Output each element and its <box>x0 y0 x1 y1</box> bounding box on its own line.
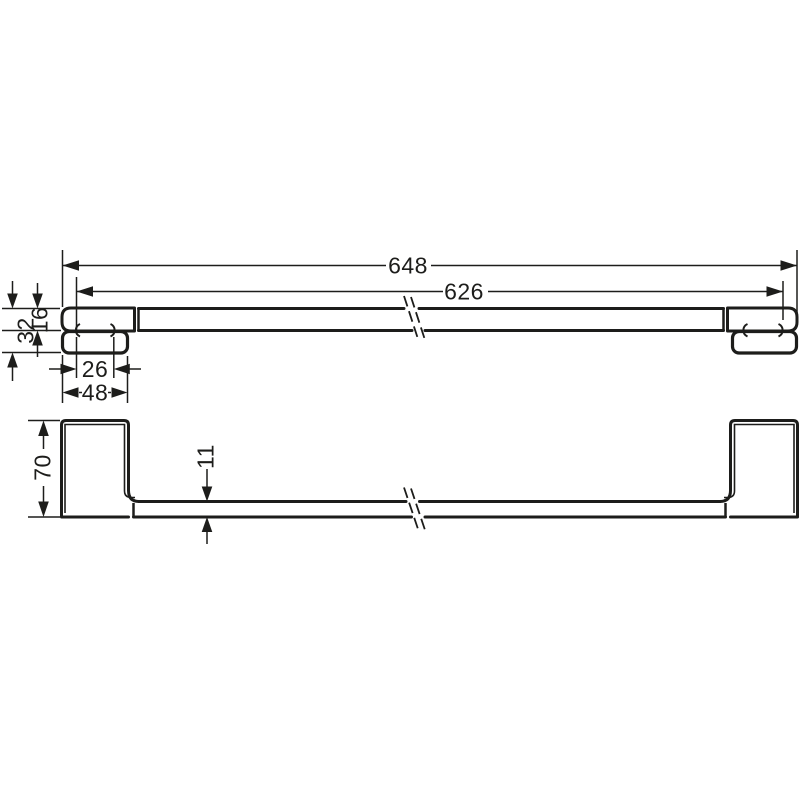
arrowhead-down-icon <box>38 502 49 518</box>
dim-overall-length-label: 648 <box>388 253 428 279</box>
bracket-outline <box>720 421 798 518</box>
rail-outline <box>134 488 726 534</box>
dimension-mounting-centers: 626 <box>77 277 784 330</box>
bracket-inner-edge <box>65 425 135 514</box>
arrowhead-left-icon <box>63 260 80 270</box>
arrowhead-down-icon <box>32 294 43 309</box>
end-cap-outline <box>728 308 798 331</box>
right-bracket <box>720 421 798 518</box>
dim-bracket-height-label: 70 <box>30 454 56 481</box>
dim-plate-width-label: 48 <box>82 380 109 406</box>
dimension-rail-thickness: 11 <box>193 444 219 544</box>
dim-rail-depth-label: 16 <box>27 307 53 334</box>
arrowhead-up-icon <box>7 353 18 368</box>
bracket-inner-edge <box>724 425 794 514</box>
arrowhead-up-icon <box>38 421 49 437</box>
front-view: 70 11 <box>28 421 798 545</box>
arrowhead-right-icon <box>112 387 128 397</box>
arrowhead-up-icon <box>202 517 213 532</box>
right-end-cap <box>728 308 798 353</box>
drawing-canvas: 648 626 <box>0 0 800 800</box>
dim-mounting-centers-label: 626 <box>444 279 484 305</box>
break-mark <box>411 297 425 340</box>
arrowhead-right-icon <box>781 260 798 270</box>
top-view: 648 626 <box>2 250 797 406</box>
dimension-bracket-height: 70 <box>28 421 60 518</box>
rail-outline <box>139 296 724 340</box>
arrowhead-left-icon <box>63 387 79 397</box>
wall-plate-left <box>63 332 128 354</box>
arrowhead-right-icon <box>767 286 784 296</box>
dim-plate-hole-spacing-label: 26 <box>82 356 109 382</box>
wall-plate-right <box>733 332 797 354</box>
left-end-cap <box>62 308 135 353</box>
end-cap-outline <box>62 308 135 331</box>
dimension-overall-length: 648 <box>63 250 798 313</box>
break-mark <box>404 488 419 533</box>
arrowhead-down-icon <box>7 294 18 309</box>
break-mark <box>404 296 418 339</box>
arrowhead-left-icon <box>77 286 94 296</box>
dim-rail-thickness-label: 11 <box>193 444 219 469</box>
technical-drawing: 648 626 <box>0 0 800 800</box>
arrowhead-down-icon <box>202 487 213 502</box>
left-bracket <box>62 421 140 518</box>
bracket-outline <box>62 421 140 518</box>
break-mark <box>411 489 426 534</box>
